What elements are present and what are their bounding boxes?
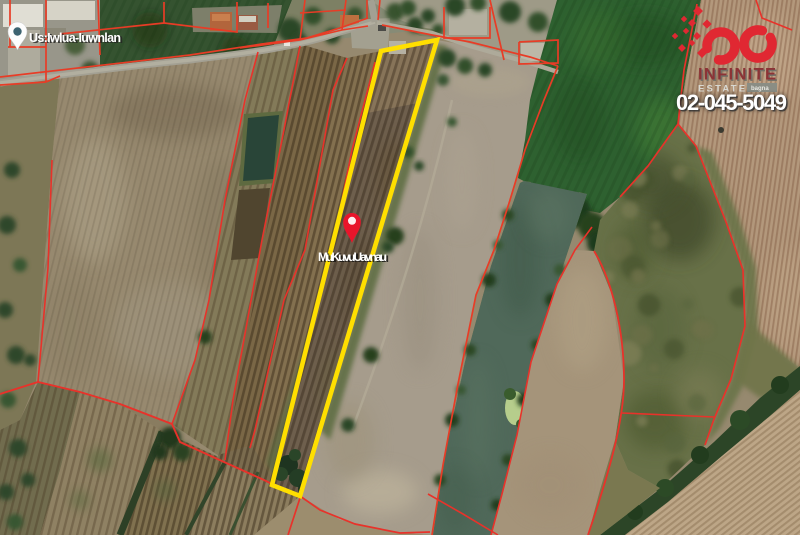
svg-text:MuKuvuUavnau: MuKuvuUavnau xyxy=(318,250,387,264)
svg-text:Us:Iwlua-Iuwnlan: Us:Iwlua-Iuwnlan xyxy=(29,31,121,45)
svg-text:INFINITE: INFINITE xyxy=(698,66,776,84)
svg-text:02-045-5049: 02-045-5049 xyxy=(676,90,787,115)
